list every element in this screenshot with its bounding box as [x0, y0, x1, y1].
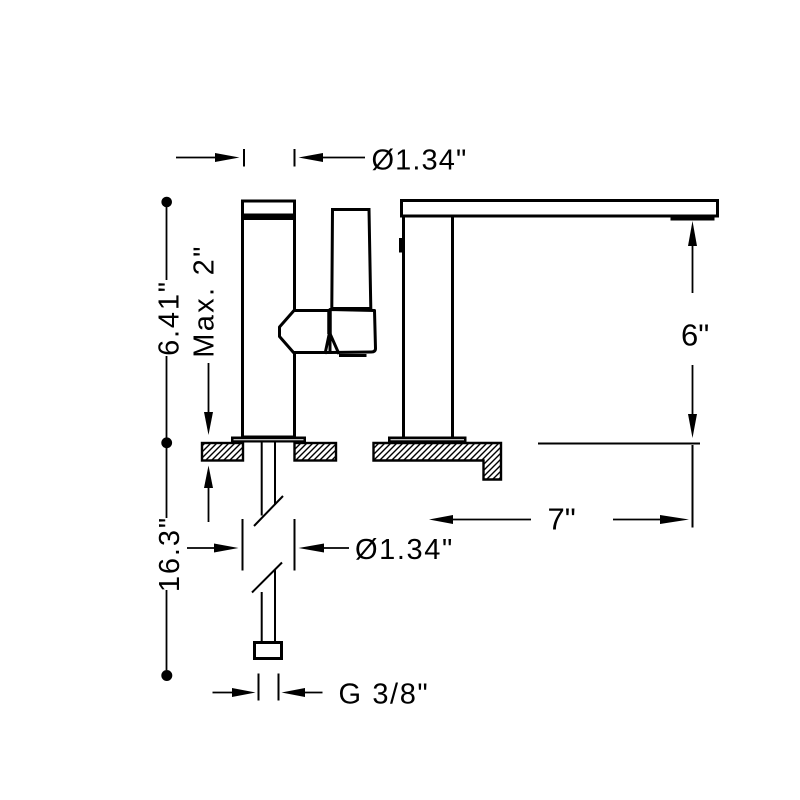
svg-text:Max. 2": Max. 2": [189, 244, 221, 357]
svg-text:G 3/8": G 3/8": [339, 679, 430, 711]
svg-text:7": 7": [548, 502, 576, 537]
svg-text:Ø1.34": Ø1.34": [372, 145, 468, 177]
svg-text:6": 6": [681, 318, 709, 353]
svg-text:6.41": 6.41": [154, 280, 186, 356]
svg-text:16.3": 16.3": [154, 516, 186, 592]
svg-text:Ø1.34": Ø1.34": [355, 534, 454, 566]
